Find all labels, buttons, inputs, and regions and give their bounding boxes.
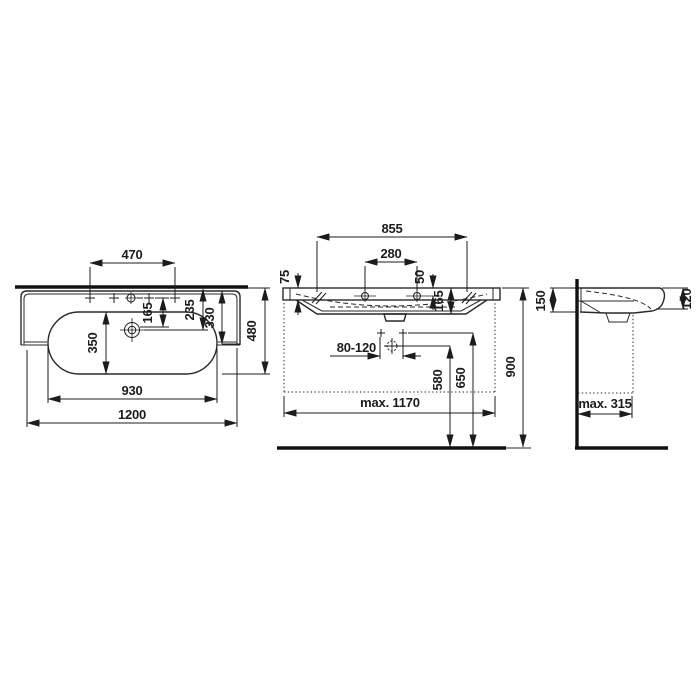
washbasin-dimension-drawing: 470 165 235 330 480 <box>0 0 700 700</box>
dim-label-max-1170: max. 1170 <box>360 395 420 410</box>
dim-label-330: 330 <box>202 307 217 328</box>
front-view: 855 280 75 50 165 <box>277 221 531 448</box>
dim-label-165-plan: 165 <box>140 302 155 323</box>
technical-drawing-page: 470 165 235 330 480 <box>0 0 700 700</box>
dim-label-150: 150 <box>533 290 548 311</box>
dim-label-900: 900 <box>503 356 518 377</box>
dim-label-480: 480 <box>244 320 259 341</box>
dim-80-120: 80-120 <box>330 337 421 359</box>
dim-150: 150 <box>533 288 578 312</box>
front-underside-outer <box>296 300 487 314</box>
side-bowl-hidden-curve <box>586 291 651 309</box>
side-underside-slant <box>581 301 601 313</box>
dim-label-855: 855 <box>381 221 402 236</box>
dim-900: 900 <box>502 288 529 447</box>
dim-480: 480 <box>222 288 270 374</box>
dim-label-165-front: 165 <box>431 290 446 311</box>
dim-label-1200: 1200 <box>118 407 146 422</box>
dim-label-235: 235 <box>182 299 197 320</box>
dim-120: 120 <box>656 288 694 310</box>
dim-label-930: 930 <box>121 383 142 398</box>
side-drain-trap <box>606 313 630 322</box>
dim-650: 650 <box>453 333 473 447</box>
dim-label-80-120: 80-120 <box>337 340 376 355</box>
plan-view: 470 165 235 330 480 <box>15 247 270 427</box>
dim-max-315: max. 315 <box>578 396 632 418</box>
dim-580: 580 <box>430 346 450 447</box>
side-projection-outline <box>578 315 633 393</box>
dim-label-470: 470 <box>121 247 142 262</box>
front-drain-outlet <box>384 314 406 321</box>
dim-label-120: 120 <box>679 288 694 309</box>
dim-280: 280 <box>365 246 417 291</box>
dim-max-1170: max. 1170 <box>284 395 495 417</box>
dim-label-75: 75 <box>277 270 292 284</box>
drain-connection-symbol <box>384 338 450 354</box>
dim-label-50: 50 <box>412 270 427 284</box>
supply-connection-markers <box>377 329 473 337</box>
dim-label-580: 580 <box>430 369 445 390</box>
dim-label-350: 350 <box>85 332 100 353</box>
side-view: 150 120 max. 315 <box>533 279 694 448</box>
dim-label-650: 650 <box>453 367 468 388</box>
dim-label-max-315: max. 315 <box>578 396 631 411</box>
dim-label-280: 280 <box>380 246 401 261</box>
